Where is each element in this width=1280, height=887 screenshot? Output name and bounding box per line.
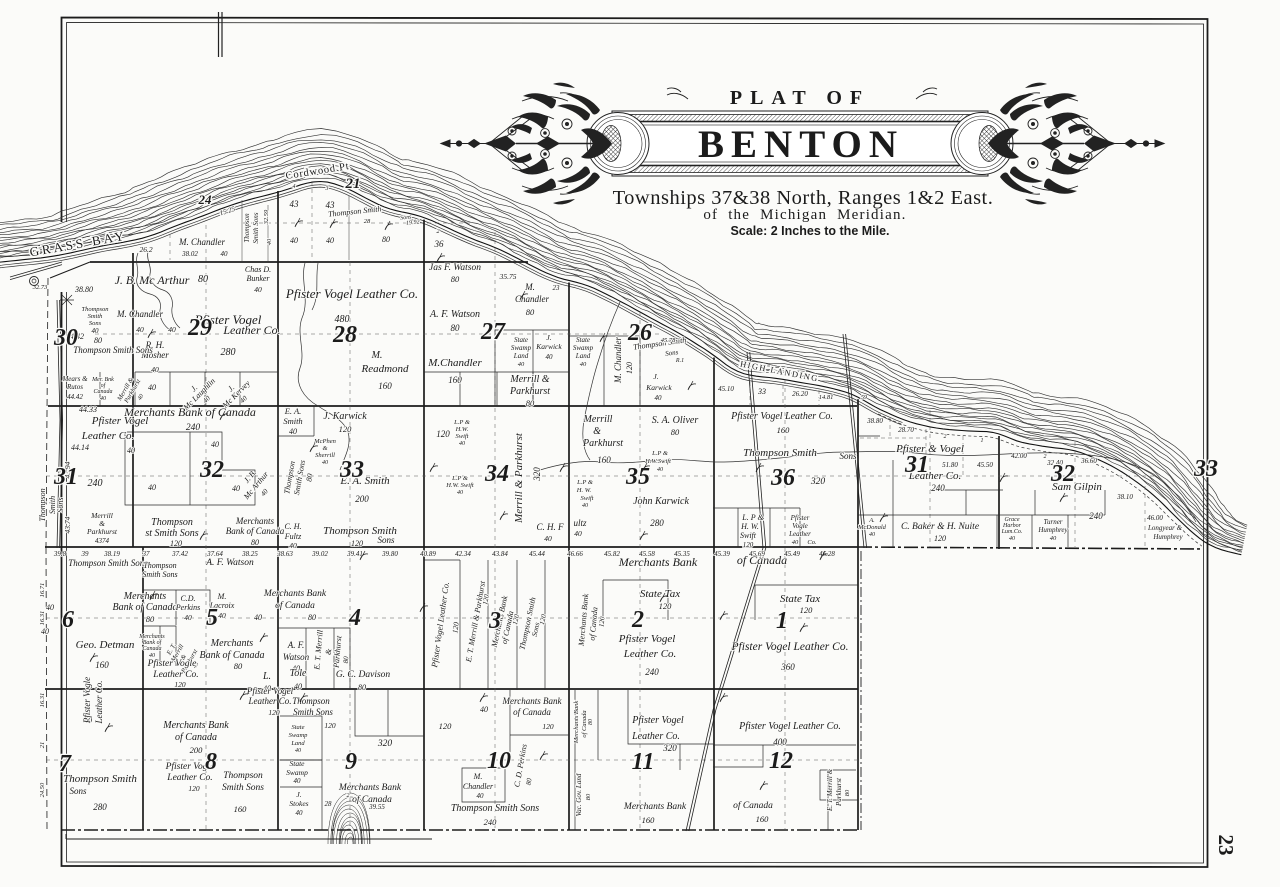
svg-text:Parkhurst: Parkhurst (509, 386, 550, 397)
svg-text:80: 80 (382, 235, 390, 244)
svg-text:Thompson: Thompson (38, 488, 47, 521)
svg-text:160: 160 (756, 814, 770, 824)
svg-text:Merrill: Merrill (583, 414, 613, 425)
svg-text:Rutos: Rutos (66, 383, 83, 391)
svg-text:Pfister Vogel Leather Co.: Pfister Vogel Leather Co. (731, 641, 849, 653)
svg-text:2: 2 (631, 607, 644, 633)
svg-text:40: 40 (168, 325, 176, 334)
svg-text:32: 32 (199, 457, 224, 483)
svg-text:39.41: 39.41 (346, 550, 363, 558)
svg-text:30: 30 (53, 325, 78, 351)
svg-text:40: 40 (544, 534, 552, 543)
svg-text:Canada: Canada (93, 389, 112, 395)
svg-text:40: 40 (221, 250, 229, 258)
svg-text:Swift: Swift (580, 495, 593, 502)
svg-text:State Tax: State Tax (780, 593, 820, 605)
svg-text:26: 26 (627, 320, 652, 346)
svg-text:39.55: 39.55 (368, 803, 385, 811)
svg-text:Smith Sons: Smith Sons (142, 570, 177, 579)
svg-text:120: 120 (170, 539, 182, 548)
svg-text:40: 40 (290, 236, 298, 245)
svg-text:Merchants Bank: Merchants Bank (573, 701, 580, 745)
svg-text:4374: 4374 (95, 537, 110, 545)
svg-text:40: 40 (546, 353, 554, 361)
svg-text:H. W.: H. W. (576, 487, 592, 494)
svg-text:80: 80 (308, 613, 316, 622)
svg-text:280: 280 (650, 518, 664, 528)
svg-text:Pfister: Pfister (790, 514, 810, 522)
svg-text:40: 40 (294, 682, 302, 691)
svg-text:Thompson: Thompson (143, 561, 176, 570)
svg-text:120: 120 (324, 721, 336, 730)
svg-text:Pfister Vogel Leather Co.: Pfister Vogel Leather Co. (738, 721, 841, 732)
svg-text:Leather Co.: Leather Co. (247, 696, 291, 706)
svg-text:43.84: 43.84 (492, 550, 508, 558)
svg-text:Lum.Co.: Lum.Co. (1001, 529, 1023, 535)
svg-text:44.14: 44.14 (71, 443, 89, 452)
svg-text:L.P &: L.P & (453, 419, 471, 426)
svg-text:Jas F. Watson: Jas F. Watson (429, 263, 481, 273)
svg-text:2: 2 (944, 434, 947, 440)
svg-text:Scale: 2 Inches to the Mile.: Scale: 2 Inches to the Mile. (730, 224, 889, 238)
svg-text:80: 80 (585, 793, 592, 800)
svg-text:120: 120 (659, 601, 673, 611)
svg-text:2: 2 (347, 793, 350, 799)
svg-text:A. F. Watson: A. F. Watson (205, 558, 254, 568)
svg-text:80: 80 (251, 538, 259, 547)
svg-text:Smith: Smith (88, 313, 103, 320)
svg-text:40: 40 (295, 747, 301, 754)
svg-text:51.80: 51.80 (942, 461, 958, 469)
svg-text:Sons: Sons (69, 786, 87, 796)
svg-text:43.74: 43.74 (63, 516, 72, 533)
svg-text:Merchants Bank: Merchants Bank (502, 696, 563, 706)
svg-text:160: 160 (597, 455, 611, 465)
svg-text:28.70: 28.70 (898, 426, 914, 434)
svg-text:37.64: 37.64 (206, 550, 223, 558)
svg-text:40: 40 (184, 613, 192, 622)
svg-text:23: 23 (1214, 835, 1238, 856)
svg-text:M.: M. (217, 592, 227, 601)
svg-text:40: 40 (322, 459, 328, 466)
svg-text:Pfister Vogel: Pfister Vogel (246, 686, 294, 696)
svg-text:of Canada: of Canada (733, 800, 773, 811)
svg-text:14.81: 14.81 (819, 394, 834, 401)
svg-text:Thompson: Thompson (151, 517, 193, 528)
svg-text:40: 40 (136, 325, 144, 334)
svg-text:Leather Co.: Leather Co. (222, 323, 280, 337)
svg-text:M.: M. (524, 282, 535, 292)
svg-text:160: 160 (95, 660, 109, 670)
svg-text:120: 120 (439, 721, 453, 731)
svg-text:3: 3 (488, 608, 501, 634)
svg-text:80: 80 (198, 274, 208, 285)
svg-text:240: 240 (88, 478, 103, 489)
svg-text:Parkhurst: Parkhurst (582, 438, 623, 449)
svg-text:29: 29 (187, 315, 212, 341)
svg-text:3: 3 (325, 186, 329, 192)
svg-text:Swamp: Swamp (289, 732, 309, 739)
svg-text:L.: L. (262, 671, 271, 682)
svg-text:240: 240 (484, 817, 498, 827)
svg-text:Pfister Vogle: Pfister Vogle (147, 658, 197, 669)
svg-text:40: 40 (148, 383, 156, 392)
svg-text:Smith Sons: Smith Sons (252, 212, 260, 243)
svg-text:120: 120 (174, 680, 186, 689)
svg-text:Watson: Watson (283, 652, 310, 662)
svg-text:40: 40 (457, 489, 463, 496)
svg-text:Thompson: Thompson (292, 696, 330, 706)
svg-text:40: 40 (151, 365, 159, 374)
svg-text:E. A.: E. A. (284, 406, 302, 416)
svg-text:Land: Land (290, 740, 305, 747)
svg-text:Leather Co.: Leather Co. (81, 430, 135, 442)
svg-text:40: 40 (326, 236, 334, 245)
svg-text:Leather Co.: Leather Co. (623, 648, 677, 660)
svg-text:Smith Sons: Smith Sons (293, 707, 333, 717)
svg-text:360: 360 (780, 662, 795, 672)
svg-text:32.59: 32.59 (263, 209, 270, 225)
svg-text:Sons: Sons (839, 451, 857, 461)
svg-text:28: 28 (332, 322, 357, 348)
svg-text:Thompson Smith Sons: Thompson Smith Sons (73, 345, 153, 355)
svg-text:160: 160 (642, 815, 656, 825)
svg-text:120: 120 (625, 362, 634, 374)
svg-text:Karwick: Karwick (645, 383, 672, 392)
svg-text:320: 320 (810, 477, 826, 487)
svg-text:38.80: 38.80 (866, 417, 883, 425)
svg-text:Perkins: Perkins (175, 603, 200, 612)
svg-text:160: 160 (777, 425, 791, 435)
svg-text:160: 160 (448, 375, 462, 385)
svg-text:40: 40 (218, 611, 226, 620)
svg-text:38.63: 38.63 (276, 550, 293, 558)
svg-text:200: 200 (355, 494, 369, 504)
svg-text:A. F. Watson: A. F. Watson (429, 309, 480, 320)
svg-text:280: 280 (93, 802, 107, 812)
svg-text:L.P &: L.P & (576, 479, 594, 486)
svg-text:40: 40 (254, 285, 262, 294)
svg-text:C. H.: C. H. (284, 522, 301, 531)
svg-text:59: 59 (861, 395, 867, 401)
svg-text:Karwick: Karwick (535, 342, 562, 351)
svg-text:44.42: 44.42 (67, 393, 83, 401)
svg-text:Swamp: Swamp (511, 344, 532, 352)
svg-text:120: 120 (188, 784, 200, 793)
svg-text:st Smith Sons: st Smith Sons (145, 528, 198, 539)
svg-text:39.02: 39.02 (311, 550, 328, 558)
svg-text:Land: Land (513, 352, 529, 360)
svg-text:Geo. Detman: Geo. Detman (76, 639, 135, 651)
svg-text:120: 120 (542, 722, 554, 731)
svg-text:27: 27 (480, 319, 506, 345)
svg-text:E. T. Merrill &: E. T. Merrill & (826, 768, 834, 812)
svg-text:Mears &: Mears & (61, 375, 88, 383)
svg-text:40: 40 (100, 395, 106, 402)
svg-text:5: 5 (206, 605, 218, 631)
svg-text:38.80: 38.80 (74, 285, 93, 294)
svg-text:40: 40 (289, 541, 297, 550)
svg-text:Thompson Smith Sons: Thompson Smith Sons (451, 803, 539, 814)
svg-text:35: 35 (625, 464, 650, 490)
svg-text:16.31: 16.31 (39, 693, 46, 708)
svg-text:120: 120 (436, 429, 450, 439)
svg-text:80: 80 (358, 683, 366, 692)
svg-text:Co.: Co. (807, 539, 817, 546)
svg-text:State: State (292, 724, 305, 731)
svg-text:240: 240 (931, 483, 945, 493)
svg-text:Merrill &: Merrill & (509, 374, 549, 385)
svg-text:M.: M. (473, 772, 483, 781)
svg-text:Parkhurst: Parkhurst (835, 777, 843, 807)
svg-text:G. C. Davison: G. C. Davison (336, 670, 391, 680)
svg-text:Leather Co.: Leather Co. (94, 680, 104, 724)
svg-text:40: 40 (148, 483, 156, 492)
svg-text:Readmond: Readmond (360, 363, 409, 375)
svg-text:36: 36 (434, 239, 445, 249)
svg-text:40: 40 (480, 705, 488, 714)
svg-text:40: 40 (459, 440, 465, 447)
svg-text:40: 40 (1009, 535, 1015, 542)
svg-text:38.10: 38.10 (1116, 493, 1133, 501)
svg-text:M.Chandler: M.Chandler (427, 357, 482, 369)
svg-text:40: 40 (574, 529, 582, 538)
svg-text:H. W.: H. W. (740, 522, 759, 531)
svg-text:36: 36 (770, 465, 795, 491)
svg-text:40: 40 (127, 446, 135, 455)
svg-text:40: 40 (294, 777, 302, 785)
svg-text:Sherrill: Sherrill (315, 452, 335, 459)
svg-text:33: 33 (757, 387, 766, 396)
svg-text:40: 40 (869, 531, 875, 538)
svg-text:State: State (290, 759, 306, 768)
svg-text:Vac. Gov. Land: Vac. Gov. Land (575, 773, 583, 816)
svg-text:12: 12 (769, 748, 793, 774)
svg-text:of Canada: of Canada (513, 707, 551, 717)
svg-text:24: 24 (198, 192, 213, 207)
svg-text:Swift: Swift (740, 531, 757, 540)
svg-text:46.00: 46.00 (1147, 514, 1163, 522)
svg-text:Stokes: Stokes (289, 799, 308, 808)
svg-text:C.D.: C.D. (180, 594, 195, 603)
svg-text:400: 400 (773, 737, 787, 747)
svg-text:39: 39 (81, 550, 90, 558)
svg-text:45.10: 45.10 (718, 385, 734, 393)
svg-text:L.P &: L.P & (651, 450, 669, 457)
svg-text:1: 1 (981, 438, 984, 444)
svg-text:4: 4 (293, 183, 296, 190)
svg-text:A.: A. (868, 517, 875, 524)
svg-text:40: 40 (92, 327, 100, 335)
svg-text:J.: J. (546, 333, 551, 342)
svg-text:28: 28 (364, 218, 371, 225)
svg-text:40: 40 (149, 652, 155, 659)
svg-text:16.31: 16.31 (39, 611, 46, 626)
svg-text:34: 34 (484, 461, 509, 487)
svg-text:40: 40 (580, 361, 587, 368)
svg-text:of Canada: of Canada (175, 732, 217, 743)
svg-text:32: 32 (1050, 461, 1075, 487)
svg-text:McPhen: McPhen (313, 438, 336, 445)
svg-text:320: 320 (662, 743, 677, 753)
svg-text:2: 2 (1044, 454, 1047, 460)
svg-text:240: 240 (645, 667, 659, 677)
svg-text:40.89: 40.89 (420, 550, 436, 558)
svg-text:Pfister Vogel: Pfister Vogel (631, 715, 684, 726)
svg-text:Humphrey: Humphrey (1152, 533, 1183, 541)
svg-text:40: 40 (41, 627, 49, 636)
svg-text:200: 200 (190, 745, 204, 755)
svg-text:Sons: Sons (377, 535, 395, 545)
svg-text:37: 37 (142, 550, 151, 558)
svg-text:Turner: Turner (1043, 518, 1062, 526)
svg-text:Sons: Sons (56, 497, 65, 512)
svg-text:80: 80 (94, 336, 102, 345)
svg-text:C. Baker & H. Nuite: C. Baker & H. Nuite (901, 522, 979, 532)
svg-text:J. Karwick: J. Karwick (323, 411, 367, 422)
svg-text:Bank of: Bank of (143, 639, 163, 646)
svg-text:Bank of Canada: Bank of Canada (113, 602, 178, 613)
svg-text:9: 9 (345, 749, 357, 775)
svg-text:40: 40 (792, 539, 799, 546)
svg-text:Fultz: Fultz (284, 532, 302, 541)
svg-text:80: 80 (844, 789, 851, 796)
svg-text:40: 40 (518, 361, 525, 368)
svg-text:Leather Co.: Leather Co. (631, 731, 680, 742)
svg-text:4: 4 (348, 605, 361, 631)
svg-text:26.2: 26.2 (139, 245, 152, 254)
svg-text:40: 40 (582, 502, 588, 509)
svg-text:M.: M. (371, 350, 383, 361)
svg-text:Tole: Tole (290, 668, 307, 679)
svg-text:Bunker: Bunker (246, 274, 270, 283)
svg-text:S. A. Oliver: S. A. Oliver (652, 415, 699, 426)
svg-text:42.00: 42.00 (1011, 452, 1027, 460)
svg-text:R.1: R.1 (675, 358, 684, 364)
svg-text:Pfister Vogel Leather Co.: Pfister Vogel Leather Co. (285, 286, 418, 301)
svg-text:Merchants: Merchants (235, 516, 275, 526)
svg-text:280: 280 (221, 347, 236, 358)
svg-text:80: 80 (451, 274, 460, 284)
svg-text:120: 120 (450, 621, 461, 634)
svg-text:42.34: 42.34 (455, 550, 471, 558)
svg-text:Thompson: Thompson (243, 213, 251, 243)
svg-text:Thompson Smith: Thompson Smith (743, 447, 817, 459)
svg-text:Bank of Canada: Bank of Canada (200, 650, 265, 661)
svg-text:State: State (576, 336, 590, 344)
svg-text:40: 40 (289, 427, 297, 436)
svg-text:M. Chandler: M. Chandler (178, 237, 225, 247)
svg-text:Pfister Vogle: Pfister Vogle (82, 677, 92, 724)
svg-text:39.8: 39.8 (53, 550, 67, 558)
svg-text:Land: Land (575, 352, 591, 360)
svg-text:C. H. F: C. H. F (537, 522, 565, 532)
svg-text:Canada: Canada (142, 646, 161, 652)
svg-text:Townships 37&38 North, Ranges: Townships 37&38 North, Ranges 1&2 East. (613, 187, 994, 209)
svg-text:80: 80 (304, 473, 314, 482)
svg-text:120: 120 (351, 539, 363, 548)
svg-text:38.25: 38.25 (241, 550, 258, 558)
svg-text:31: 31 (53, 464, 78, 490)
svg-text:J.: J. (296, 790, 301, 799)
svg-text:80: 80 (588, 719, 594, 725)
svg-text:Longyear &: Longyear & (1147, 524, 1183, 532)
svg-text:Merchants Bank: Merchants Bank (618, 555, 698, 569)
svg-text:80: 80 (234, 661, 243, 671)
svg-text:120: 120 (339, 424, 353, 434)
svg-text:80: 80 (451, 323, 461, 333)
svg-text:46.66: 46.66 (567, 550, 583, 558)
svg-text:45.44: 45.44 (529, 550, 545, 558)
svg-text:160: 160 (234, 804, 248, 814)
svg-text:Thompson Smith Sons: Thompson Smith Sons (68, 558, 148, 568)
svg-text:40: 40 (211, 440, 219, 449)
svg-text:40: 40 (46, 603, 54, 612)
svg-text:38.02: 38.02 (181, 250, 198, 258)
svg-text:Leather Co.: Leather Co. (152, 670, 198, 680)
svg-text:33: 33 (339, 457, 364, 483)
svg-text:38.19: 38.19 (103, 550, 120, 558)
svg-text:Smith Sons: Smith Sons (222, 783, 264, 793)
svg-text:26.20: 26.20 (792, 390, 808, 398)
svg-text:35.75: 35.75 (499, 272, 517, 281)
svg-text:H.W. Swift: H.W. Swift (445, 482, 474, 489)
svg-text:Sons: Sons (89, 320, 102, 327)
svg-text:of the Michigan Meridian.: of the Michigan Meridian. (703, 207, 906, 223)
svg-text:Parkhurst: Parkhurst (86, 527, 118, 536)
svg-text:Thompson Smith: Thompson Smith (63, 773, 137, 785)
svg-text:Merchants: Merchants (123, 591, 167, 602)
svg-text:320: 320 (377, 739, 393, 749)
svg-text:M. Chandler: M. Chandler (613, 337, 623, 384)
svg-text:Swift: Swift (455, 433, 468, 440)
svg-text:Swamp: Swamp (573, 344, 594, 352)
svg-text:44.33: 44.33 (79, 405, 97, 414)
svg-text:36.60: 36.60 (1080, 457, 1097, 465)
svg-text:L.P &: L.P & (451, 475, 469, 482)
svg-text:ultz: ultz (573, 518, 587, 528)
svg-text:33: 33 (1193, 456, 1218, 482)
svg-text:L. P &: L. P & (741, 513, 764, 522)
svg-text:Thompson: Thompson (81, 306, 108, 313)
svg-text:11: 11 (632, 749, 655, 775)
svg-text:8: 8 (205, 749, 217, 775)
svg-text:45.39: 45.39 (714, 550, 730, 558)
svg-text:Merchants Bank: Merchants Bank (162, 720, 229, 731)
svg-text:Smith: Smith (283, 416, 302, 426)
svg-text:120: 120 (934, 534, 946, 543)
svg-text:Pfister Vogel Leather Co.: Pfister Vogel Leather Co. (730, 411, 833, 422)
svg-text:21: 21 (345, 176, 361, 192)
svg-text:Humphrey: Humphrey (1037, 526, 1068, 534)
svg-text:80: 80 (671, 427, 680, 437)
svg-text:120: 120 (268, 708, 280, 717)
svg-text:1: 1 (776, 608, 788, 634)
svg-text:120: 120 (598, 616, 607, 628)
svg-text:Swamp: Swamp (286, 768, 308, 777)
svg-text:Merchants Bank: Merchants Bank (263, 589, 327, 599)
svg-text:24.50: 24.50 (39, 782, 46, 797)
svg-text:39.80: 39.80 (381, 550, 398, 558)
svg-text:Chandler: Chandler (463, 782, 494, 791)
svg-text:M. Chandler: M. Chandler (116, 309, 163, 319)
svg-text:Merchants Bank: Merchants Bank (338, 783, 402, 793)
svg-text:80: 80 (526, 307, 535, 317)
svg-text:Thompson: Thompson (223, 771, 263, 781)
svg-text:160: 160 (378, 381, 392, 391)
svg-text:BENTON: BENTON (698, 123, 904, 166)
svg-text:80: 80 (146, 614, 155, 624)
